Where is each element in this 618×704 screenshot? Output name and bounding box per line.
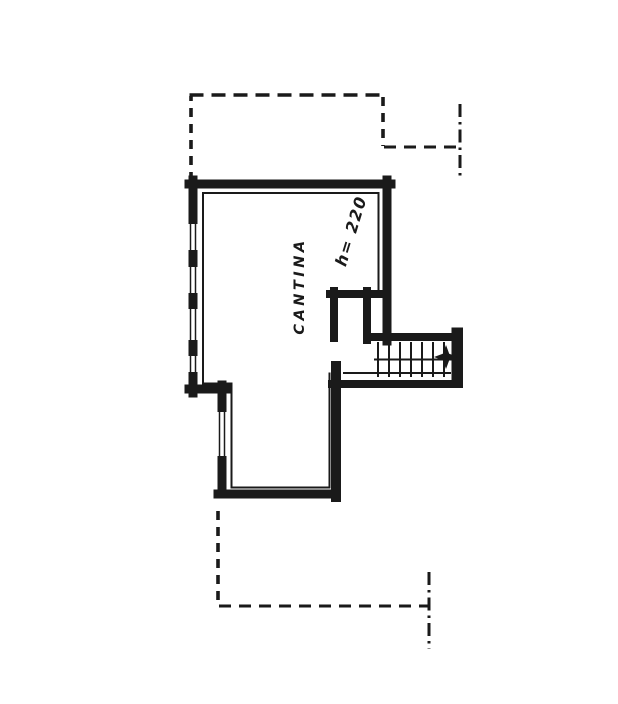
property-boundary-bottom — [218, 511, 429, 649]
floor-plan-drawing — [0, 0, 618, 704]
exterior-walls — [189, 180, 459, 497]
window-opening — [188, 224, 199, 250]
property-boundary-top — [190, 95, 461, 181]
room-label: CANTINA — [292, 237, 308, 334]
window-opening — [188, 267, 199, 293]
window-opening — [188, 356, 199, 372]
stair-alcove-walls — [330, 291, 380, 340]
floor-plan: CANTINA h= 220 — [0, 0, 618, 704]
window-opening — [188, 309, 199, 340]
stair-treads — [374, 342, 452, 377]
window-opening — [217, 412, 228, 456]
